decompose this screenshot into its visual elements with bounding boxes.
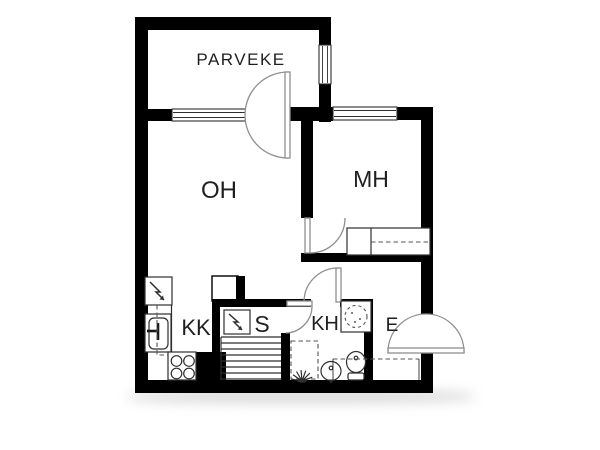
sauna-fixtures (221, 310, 281, 380)
living-bedroom-wall (301, 119, 313, 218)
bedroom-door-icon (305, 218, 345, 253)
room-label-s: S (254, 311, 269, 337)
window-bedroom-icon (333, 107, 397, 120)
bottom-exterior-wall (135, 380, 433, 393)
balcony-top-wall (135, 17, 331, 30)
bed-icon (347, 228, 430, 255)
sauna-door-icon (286, 301, 312, 333)
room-label-mh: MH (353, 166, 389, 192)
bathroom-door-icon (304, 268, 341, 302)
toilet-icon (347, 352, 366, 381)
balcony-right-wall-upper (319, 17, 331, 45)
duct-shaft-icon (212, 276, 238, 301)
refrigerator-icon (145, 277, 172, 305)
kitchen-sink-icon (145, 314, 171, 352)
window-living-icon (172, 109, 250, 121)
room-label-e: E (386, 315, 399, 336)
window-balcony-icon (319, 45, 331, 84)
room-label-kh: KH (311, 313, 339, 335)
sauna-bathroom-wall (281, 333, 290, 380)
floor-drain-icon (341, 301, 371, 332)
entry-fixtures (333, 359, 419, 380)
shaft-wall (236, 276, 245, 301)
balcony-door-icon (245, 72, 290, 158)
right-exterior-wall-upper (421, 107, 433, 319)
sauna-heater-icon (224, 310, 250, 334)
floor-plan: PARVEKE OH MH KK S KH E (0, 0, 600, 450)
living-balcony-wall-left (135, 109, 172, 121)
bedroom-fixtures (347, 228, 430, 255)
entrance-door-icon (388, 314, 464, 353)
wardrobe-icon (333, 359, 419, 380)
floor-plan-drawing: PARVEKE OH MH KK S KH E (0, 0, 600, 450)
sauna-benches-icon (221, 337, 281, 380)
stove-icon (168, 352, 196, 380)
room-label-oh: OH (201, 177, 237, 204)
living-balcony-wall-right (287, 107, 333, 121)
room-label-kk: KK (181, 315, 211, 340)
room-label-parveke: PARVEKE (196, 50, 285, 69)
